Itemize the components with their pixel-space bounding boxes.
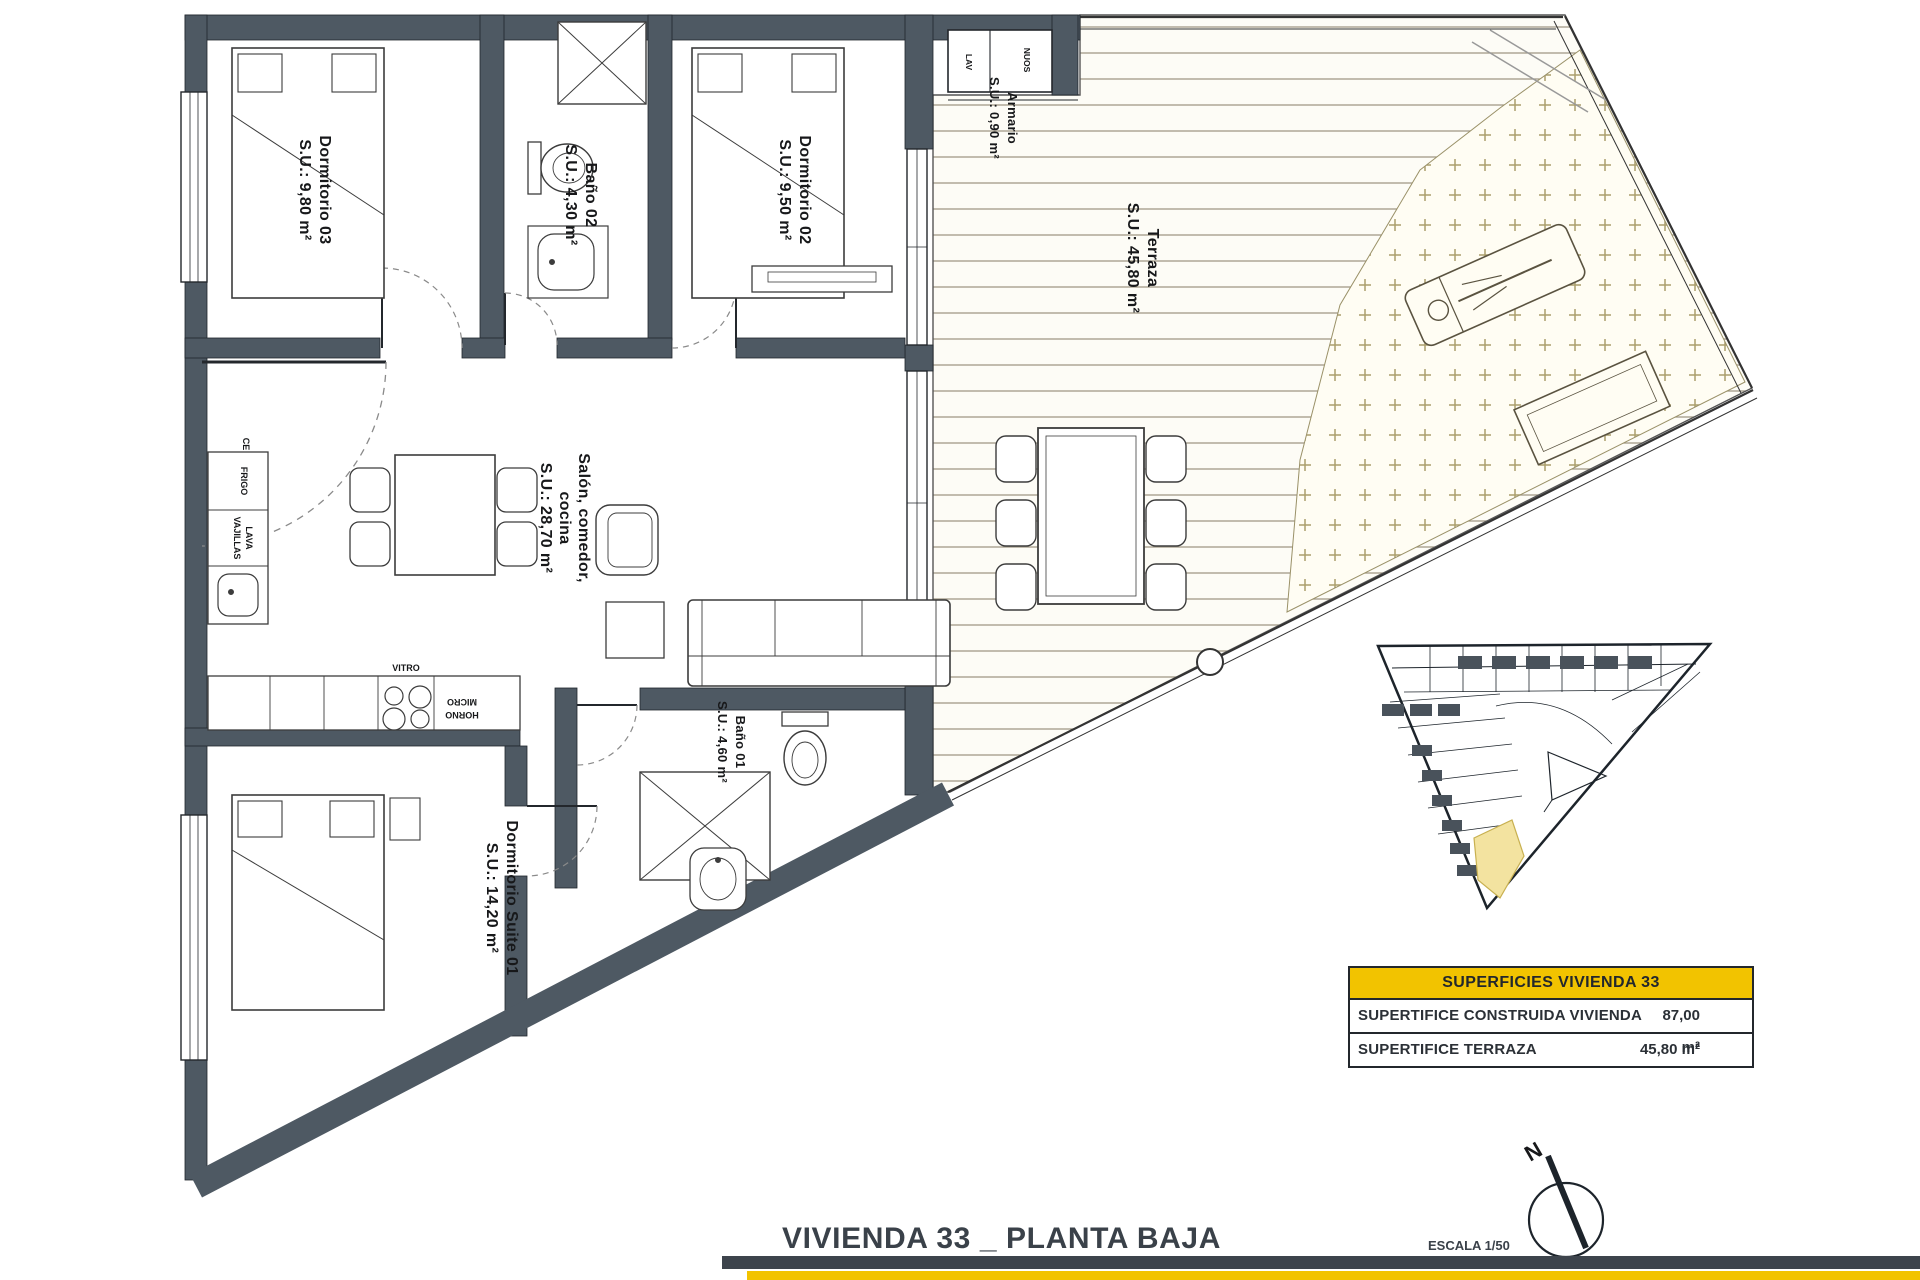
- label-salon-line2: cocina: [556, 491, 573, 544]
- legend-label: SUPERTIFICE TERRAZA: [1350, 1034, 1570, 1066]
- legend-row-terrace: SUPERTIFICE TERRAZA 45,80 m²: [1350, 1034, 1752, 1066]
- basin-bano01: [690, 848, 746, 910]
- label-dorm03-area: S.U.: 9,80 m²: [296, 139, 313, 240]
- terrace-dining-set: [996, 428, 1186, 610]
- label-bano02-name: Baño 02: [582, 162, 599, 227]
- armchair-salon: [596, 505, 658, 575]
- label-oven-2: MICRO: [447, 697, 477, 707]
- label-suite-area: S.U.: 14,20 m²: [483, 843, 500, 954]
- label-armario-name: Armario: [1005, 92, 1020, 144]
- label-washer: LAV: [964, 54, 974, 71]
- window-dorm03: [181, 92, 207, 282]
- bed-suite: [232, 795, 420, 1010]
- legend-row-constructed: SUPERTIFICE CONSTRUIDA VIVIENDA 87,00 m²: [1350, 1000, 1752, 1034]
- footer-yellow-bar: [747, 1271, 1920, 1280]
- label-suite-name: Dormitorio Suite 01: [503, 820, 520, 975]
- label-oven-1: HORNO: [445, 710, 479, 720]
- site-key-plan: [1378, 644, 1710, 908]
- label-bano02-area: S.U.: 4,30 m²: [562, 144, 579, 245]
- label-dorm02-name: Dormitorio 02: [796, 135, 813, 244]
- sofa-salon: [688, 600, 950, 686]
- label-dorm02-area: S.U.: 9,50 m²: [776, 139, 793, 240]
- label-hob: VITRO: [392, 663, 420, 673]
- label-terraza-area: S.U.: 45,80 m²: [1124, 203, 1141, 314]
- label-utility: NUOS: [1022, 48, 1032, 73]
- label-fridge: FRIGO: [239, 467, 249, 496]
- bed-dorm02: [692, 48, 844, 298]
- window-suite: [181, 815, 207, 1060]
- footer-dark-bar: [722, 1256, 1920, 1269]
- floor-plan-sheet: Dormitorio 03 S.U.: 9,80 m² Baño 02 S.U.…: [0, 0, 1920, 1280]
- shower-bano02: [558, 22, 646, 104]
- sliding-door-salon: [907, 371, 927, 635]
- label-salon-line1: Salón, comedor,: [575, 453, 592, 583]
- floor-plan-svg: Dormitorio 03 S.U.: 9,80 m² Baño 02 S.U.…: [0, 0, 1920, 1280]
- coffee-table-salon: [606, 602, 664, 658]
- sliding-door-dorm02: [907, 149, 927, 345]
- label-bano01-name: Baño 01: [733, 716, 748, 769]
- label-dorm03-name: Dormitorio 03: [316, 135, 333, 244]
- areas-legend-table: SUPERFICIES VIVIENDA 33 SUPERTIFICE CONS…: [1348, 966, 1754, 1068]
- legend-value: 87,00 m²: [1642, 1000, 1752, 1032]
- label-electric-panel: CE: [241, 438, 251, 451]
- north-label: N: [1520, 1137, 1546, 1167]
- label-terraza-name: Terraza: [1144, 229, 1161, 288]
- label-salon-area: S.U.: 28,70 m²: [537, 463, 554, 574]
- dining-table-salon: [350, 455, 537, 575]
- north-compass-icon: N: [1520, 1137, 1603, 1257]
- legend-value: 45,80 m²: [1570, 1034, 1752, 1066]
- legend-label: SUPERTIFICE CONSTRUIDA VIVIENDA: [1350, 1000, 1642, 1032]
- dresser-dorm02: [752, 266, 892, 292]
- label-dishwasher-2: VAJILLAS: [232, 517, 242, 560]
- legend-header: SUPERFICIES VIVIENDA 33: [1350, 968, 1752, 1000]
- toilet-bano01: [782, 712, 828, 785]
- label-bano01-area: S.U.: 4,60 m²: [715, 701, 730, 783]
- label-armario-area: S.U.: 0,90 m²: [987, 77, 1002, 159]
- scale-label: ESCALA 1/50: [1428, 1238, 1510, 1253]
- label-dishwasher-1: LAVA: [244, 526, 254, 550]
- plan-title: VIVIENDA 33 _ PLANTA BAJA: [782, 1222, 1221, 1256]
- terrace-column: [1197, 649, 1223, 675]
